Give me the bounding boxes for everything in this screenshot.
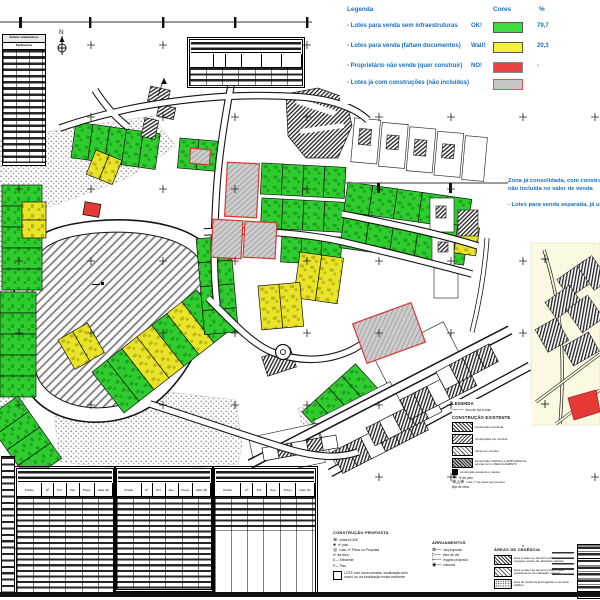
north-label: N	[59, 29, 64, 36]
existente-title: CONSTRUÇÃO EXISTENTE	[452, 415, 532, 421]
checker-swatch	[494, 567, 512, 577]
inset-map	[531, 243, 600, 425]
inset-legend-title: LEGENDA	[452, 401, 532, 407]
legend-item-wait: - Lotes para venda (faltam documentos) W…	[340, 42, 600, 54]
titleblock-side-text	[552, 552, 574, 578]
grey-swatch	[493, 79, 523, 90]
legend-item-no: - Proprietário não vende (quer construir…	[340, 62, 600, 74]
legend-item-excluded: - Lotes já com construções (não incluído…	[340, 79, 600, 91]
lots-strip-table	[1, 456, 15, 596]
urban-indices-table: Índices urbanísticos Parâmetros	[2, 34, 46, 166]
note-line1: Zona já consolidada, com construções	[508, 178, 600, 186]
lots-table-2: Prédio Nº Pol. Sup. Preço Valor (€)	[116, 468, 212, 590]
roundabout	[276, 345, 291, 360]
legend-title: Legenda	[347, 6, 373, 13]
summary-table-rows	[190, 68, 302, 86]
construcao-proposta-legend: CONSTRUÇÃO PROPOSTA ⊕ cotas ACA/E ● nº p…	[333, 530, 430, 593]
yellow-swatch	[493, 42, 523, 53]
red-swatch	[493, 62, 523, 73]
summary-table-title	[191, 41, 301, 53]
north-arrow-icon: N	[58, 29, 66, 55]
sheet-bottom-bar	[0, 592, 600, 597]
sale-status-legend: Legenda Cores % - Lotes para venda sem i…	[340, 0, 600, 104]
lots-table-3: Prédio Nº Pol. Sup. Preço Valor (€)	[214, 468, 316, 594]
note-line2: não incluída no valor de venda	[508, 186, 600, 194]
existing-construction-legend: LEGENDA —·— eixo de via a criar CONSTRUÇ…	[452, 399, 532, 523]
consolidated-zone-note: Zona já consolidada, com construções não…	[508, 178, 600, 230]
roundabout-icon: ◉—	[432, 563, 441, 568]
empty-lot-swatch	[333, 571, 342, 580]
summary-table	[189, 39, 303, 86]
summary-table-header	[190, 54, 302, 68]
params-table-rows	[3, 50, 45, 163]
params-table-header: Parâmetros	[3, 43, 45, 50]
proposta-title: CONSTRUÇÃO PROPOSTA	[333, 530, 430, 536]
note-line3: - Lotes para venda separada, já urbaniza…	[508, 202, 600, 210]
hatch-swatch	[494, 555, 512, 565]
drawing-title-block	[577, 544, 600, 599]
legend-col-pct: %	[539, 6, 545, 13]
red-lot	[83, 202, 101, 218]
legend-item-ok: - Lotes para venda sem infraestruturas O…	[340, 22, 600, 34]
lots-table-1: Prédio Nº Pol. Sup. Preço Valor (€)	[16, 468, 114, 594]
arruamentos-title: ARRUAMENTOS	[432, 540, 518, 546]
green-swatch	[493, 22, 523, 33]
axis-line-icon: —·—	[452, 408, 464, 413]
cadastral-site-plan-sheet: { "legend": { "title": "Legenda", "col_c…	[0, 0, 600, 600]
dots-swatch	[494, 579, 512, 589]
legend-col-colors: Cores	[493, 6, 511, 13]
params-table-title: Índices urbanísticos	[3, 35, 45, 43]
